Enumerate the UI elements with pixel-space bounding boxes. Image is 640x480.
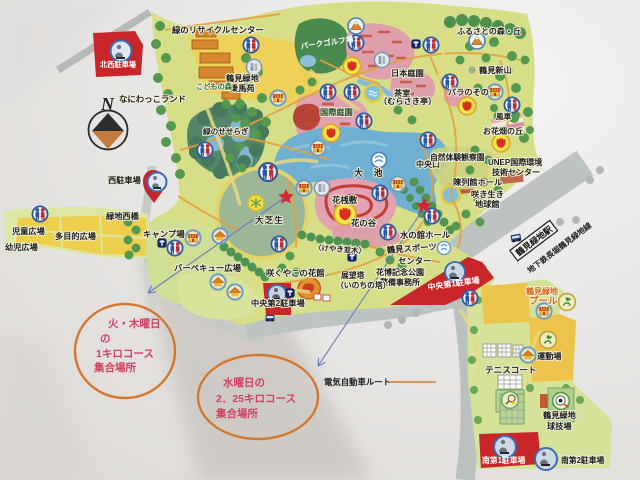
svg-text:センター: センター (398, 256, 432, 266)
svg-text:緑のせせらぎ: 緑のせせらぎ (203, 126, 249, 136)
svg-text:緑地西橋: 緑地西橋 (106, 211, 140, 221)
svg-text:火・木曜日: 火・木曜日 (108, 317, 161, 330)
svg-text:（いのちの塔）: （いのちの塔） (336, 280, 391, 290)
svg-text:日本庭園: 日本庭園 (391, 68, 424, 78)
svg-text:緑のリサイクルセンター: 緑のリサイクルセンター (172, 25, 264, 35)
svg-text:自然体験観察園: 自然体験観察園 (430, 152, 485, 162)
svg-text:大 池: 大 池 (354, 167, 387, 178)
svg-text:乗馬苑: 乗馬苑 (229, 83, 255, 93)
svg-text:花の谷: 花の谷 (351, 218, 377, 228)
svg-text:南第1駐車場: 南第1駐車場 (482, 455, 526, 465)
svg-text:多目的広場: 多目的広場 (55, 231, 97, 241)
svg-text:大芝生: 大芝生 (255, 214, 284, 225)
svg-text:バーベキュー広場: バーベキュー広場 (174, 263, 242, 273)
svg-text:N: N (100, 94, 115, 114)
svg-text:風車: 風車 (496, 111, 512, 121)
svg-text:花博記念公園: 花博記念公園 (376, 267, 424, 277)
svg-text:展望塔: 展望塔 (341, 270, 365, 280)
svg-text:UNEP国際環境: UNEP国際環境 (488, 157, 542, 167)
svg-text:幼児広場: 幼児広場 (5, 242, 39, 252)
svg-text:キャンプ場: キャンプ場 (143, 229, 185, 239)
svg-text:の: の (100, 333, 111, 345)
svg-text:運動場: 運動場 (537, 351, 562, 361)
svg-text:西駐車場: 西駐車場 (108, 175, 142, 185)
svg-text:水曜日の: 水曜日の (222, 376, 265, 389)
svg-text:1キロコース: 1キロコース (96, 348, 154, 360)
svg-text:陳列館ホール: 陳列館ホール (453, 177, 503, 187)
svg-text:集合場所: 集合場所 (93, 361, 136, 374)
svg-text:ふるさとの森・丘: ふるさとの森・丘 (457, 26, 521, 36)
svg-text:鶴見緑地: 鶴見緑地 (525, 286, 558, 296)
svg-text:南第2駐車場: 南第2駐車場 (561, 455, 605, 465)
svg-text:お花畑の丘: お花畑の丘 (483, 126, 523, 136)
svg-text:花桟敷: 花桟敷 (332, 195, 358, 205)
svg-text:バラのその: バラのその (448, 88, 489, 97)
svg-text:2．25キロコース: 2．25キロコース (216, 393, 296, 405)
svg-text:テニスコート: テニスコート (485, 365, 537, 375)
svg-text:鶴見緑地: 鶴見緑地 (543, 410, 577, 420)
svg-text:こどもの森: こどもの森 (196, 82, 233, 91)
svg-text:水の館ホール: 水の館ホール (399, 230, 451, 240)
svg-text:集合場所: 集合場所 (215, 407, 258, 420)
svg-text:球技場: 球技場 (547, 421, 572, 431)
svg-text:プール: プール (529, 295, 558, 307)
svg-text:咲き生き: 咲き生き (471, 189, 504, 199)
svg-text:（むらさき亭）: （むらさき亭） (379, 96, 436, 106)
svg-text:電気自動車ルート: 電気自動車ルート (324, 377, 391, 387)
svg-text:咲くやこの花館: 咲くやこの花館 (266, 268, 325, 278)
svg-text:地球館: 地球館 (475, 199, 500, 209)
svg-text:なにわっこランド: なにわっこランド (119, 94, 186, 104)
svg-text:鶴見新山: 鶴見新山 (479, 65, 512, 75)
svg-text:技術センター: 技術センター (492, 167, 540, 177)
svg-text:北西駐車場: 北西駐車場 (100, 60, 137, 69)
svg-text:中央第2駐車場: 中央第2駐車場 (251, 298, 305, 308)
svg-text:国際庭園: 国際庭園 (320, 107, 353, 117)
svg-text:児童広場: 児童広場 (11, 226, 46, 236)
